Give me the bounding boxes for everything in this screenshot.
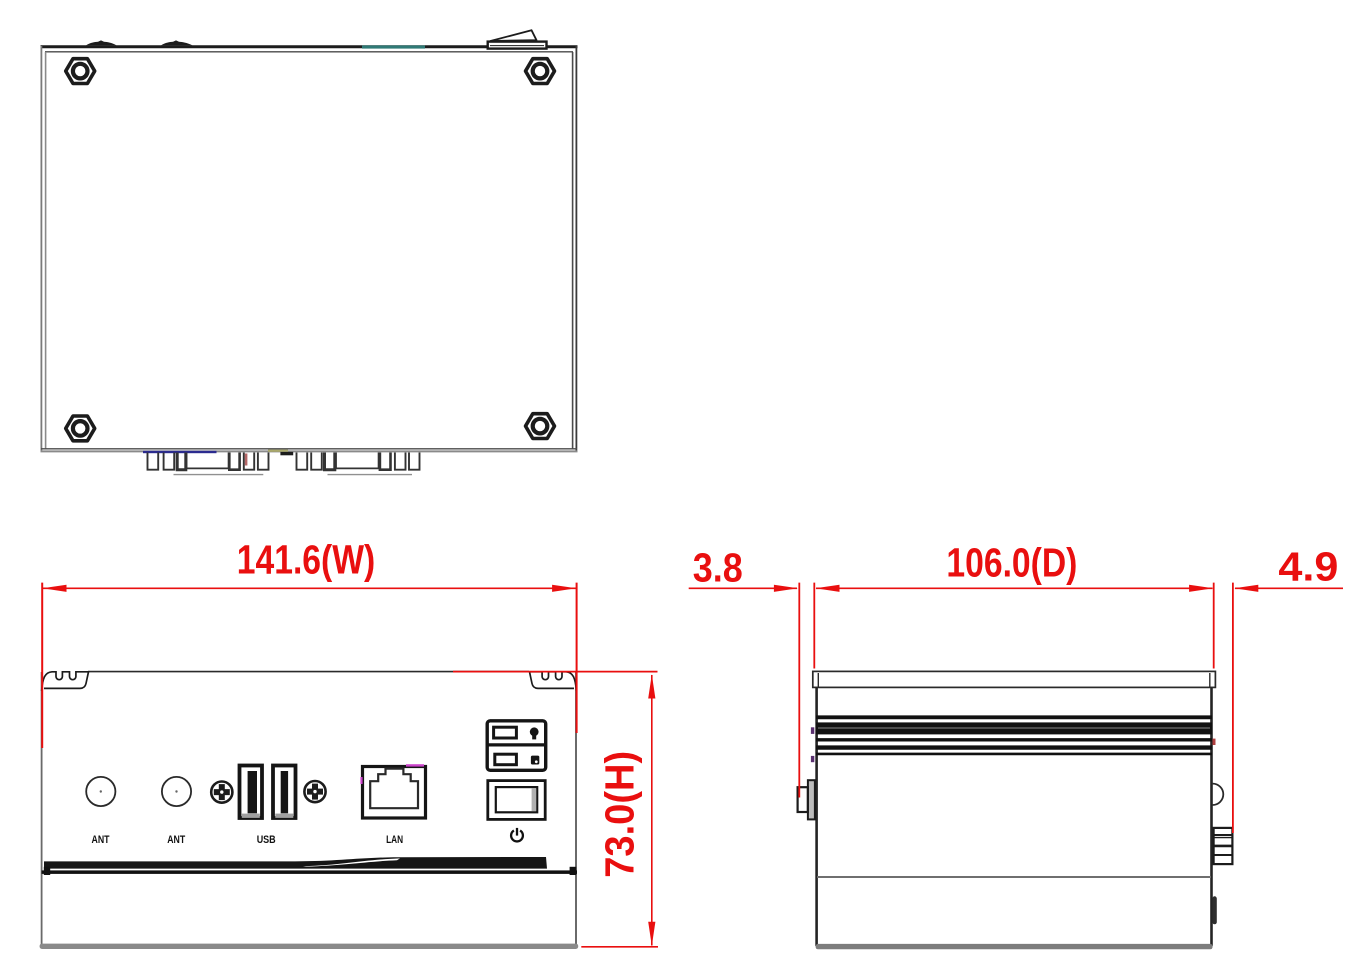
svg-text:73.0(H): 73.0(H) [597, 751, 643, 878]
svg-text:3.8: 3.8 [693, 545, 743, 591]
svg-text:ANT: ANT [167, 834, 185, 846]
svg-text:4.9: 4.9 [1278, 544, 1338, 590]
svg-text:ANT: ANT [92, 834, 110, 846]
svg-text:141.6(W): 141.6(W) [237, 537, 376, 583]
svg-text:106.0(D): 106.0(D) [946, 540, 1077, 586]
svg-text:LAN: LAN [386, 834, 403, 846]
svg-text:USB: USB [257, 834, 276, 846]
